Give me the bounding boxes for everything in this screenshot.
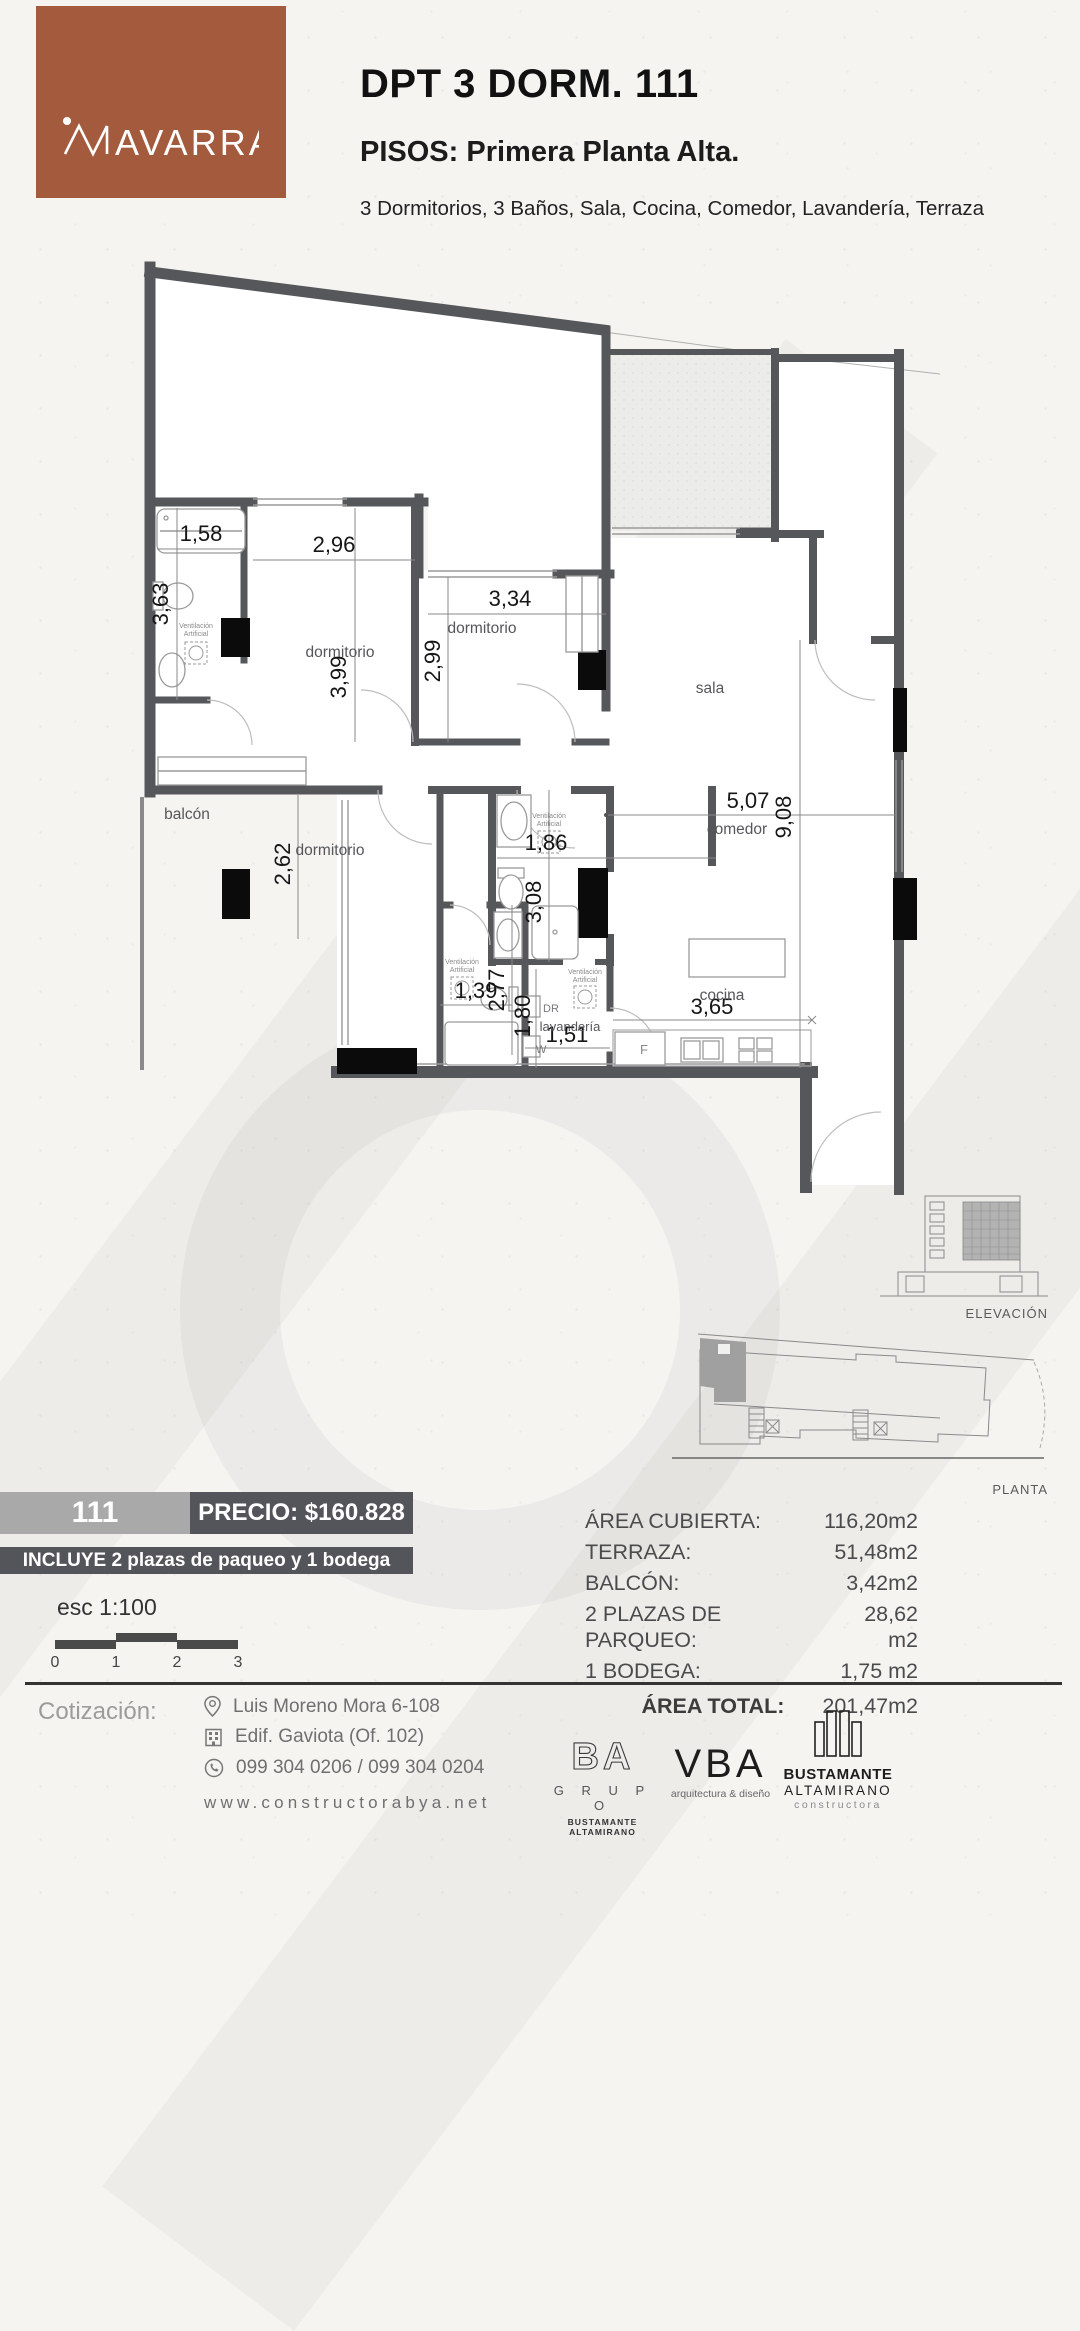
dim-dorm1-height: 3,99 — [326, 656, 351, 699]
logo-text: AVARRA — [115, 122, 259, 162]
scale-bar-graphic — [55, 1630, 255, 1650]
area-value: 1,75 m2 — [840, 1658, 918, 1684]
buildings-icon — [814, 1708, 862, 1758]
fridge-label: F — [640, 1042, 648, 1057]
dim-dorm3-height: 2,62 — [270, 843, 295, 886]
room-lavanderia: lavandería — [540, 1019, 601, 1034]
svg-text:Ventilación: Ventilación — [179, 623, 213, 630]
vba-logo: VBA arquitectura & diseño — [668, 1742, 773, 1800]
contact-text: Luis Moreno Mora 6-108 — [233, 1696, 440, 1718]
scale-bar: 0 1 2 3 — [55, 1630, 255, 1674]
grupo-label: G R U P O — [545, 1783, 660, 1813]
grupo-bustamante-altamirano-logo: BA G R U P O BUSTAMANTE ALTAMIRANO — [545, 1736, 660, 1837]
contact-phone: 099 304 0206 / 099 304 0204 — [204, 1757, 484, 1779]
site-plan-label: PLANTA — [992, 1482, 1048, 1497]
table-row: TERRAZA: 51,48m2 — [585, 1539, 918, 1565]
washer-label: W — [536, 1044, 547, 1056]
svg-text:Artificial: Artificial — [184, 631, 209, 638]
room-cocina: cocina — [700, 987, 745, 1004]
scale-tick-2: 2 — [169, 1654, 185, 1672]
quote-label: Cotización: — [38, 1698, 157, 1726]
table-row: ÁREA CUBIERTA: 116,20m2 — [585, 1508, 918, 1534]
table-row: 1 BODEGA: 1,75 m2 — [585, 1658, 918, 1684]
scale-tick-3: 3 — [230, 1654, 246, 1672]
room-dormitorio-1: dormitorio — [306, 644, 375, 661]
room-balcon: balcón — [164, 806, 210, 823]
logo-dot-icon — [63, 117, 71, 125]
table-row: 2 PLAZAS DE PARQUEO: 28,62 m2 — [585, 1601, 918, 1653]
footer-divider — [25, 1682, 1062, 1685]
vba-letters: VBA — [668, 1742, 773, 1787]
dim-dining-width: 5,07 — [727, 788, 770, 813]
dim-dorm2-width: 3,34 — [489, 586, 532, 611]
scale-label: esc 1:100 — [57, 1594, 157, 1621]
stair-core — [766, 1420, 887, 1435]
svg-text:Artificial: Artificial — [450, 967, 475, 974]
elevation-label: ELEVACIÓN — [966, 1306, 1048, 1321]
bustamante-altamirano-constructora-logo: BUSTAMANTE ALTAMIRANO constructora — [778, 1708, 898, 1811]
scale-tick-1: 1 — [108, 1654, 124, 1672]
bac-line3: constructora — [778, 1799, 898, 1811]
building-icon — [204, 1728, 223, 1747]
website-text: www.constructorabya.net — [204, 1793, 491, 1813]
dryer-label: DR — [543, 1003, 559, 1015]
dim-bath2-height: 3,08 — [521, 881, 546, 924]
svg-text:Ventilación: Ventilación — [445, 959, 479, 966]
price-badge: PRECIO: $160.828 — [190, 1492, 413, 1534]
area-label: 1 BODEGA: — [585, 1658, 701, 1684]
area-label: BALCÓN: — [585, 1570, 679, 1596]
area-label: 2 PLAZAS DE PARQUEO: — [585, 1601, 831, 1653]
ba-letters: BA — [571, 1736, 634, 1776]
svg-text:Ventilación: Ventilación — [568, 969, 602, 976]
area-value: 28,62 m2 — [831, 1601, 918, 1653]
logo-mountain-icon — [65, 126, 107, 154]
includes-badge: INCLUYE 2 plazas de paqueo y 1 bodega — [0, 1547, 413, 1574]
area-label: TERRAZA: — [585, 1539, 691, 1565]
location-pin-icon — [204, 1695, 221, 1718]
floor-plan: Ventilación Artificial Ventilación Artif… — [0, 240, 1080, 1500]
elevation-sketch: ELEVACIÓN — [880, 1196, 1048, 1321]
contact-text: 099 304 0206 / 099 304 0204 — [236, 1757, 484, 1779]
unit-description: 3 Dormitorios, 3 Baños, Sala, Cocina, Co… — [360, 197, 984, 221]
room-dormitorio-2: dormitorio — [448, 620, 517, 637]
dim-laundry-height: 1,80 — [510, 995, 535, 1038]
navarra-logo: AVARRA — [63, 112, 259, 162]
contact-text: Edif. Gaviota (Of. 102) — [235, 1726, 424, 1748]
contact-address: Luis Moreno Mora 6-108 — [204, 1695, 440, 1718]
areas-table: ÁREA CUBIERTA: 116,20m2 TERRAZA: 51,48m2… — [585, 1508, 918, 1719]
room-dormitorio-3: dormitorio — [296, 842, 365, 859]
dim-living-height: 9,08 — [771, 796, 796, 839]
room-sala: sala — [696, 680, 725, 697]
whatsapp-icon — [204, 1758, 224, 1778]
dim-bath1-height: 3,63 — [148, 583, 173, 626]
area-value: 51,48m2 — [834, 1539, 918, 1565]
ba-monogram-icon: BA — [560, 1736, 646, 1776]
grupo-sub-label: BUSTAMANTE ALTAMIRANO — [545, 1817, 660, 1837]
dim-bath1-width: 1,58 — [180, 521, 223, 546]
dim-dorm1-width: 2,96 — [313, 532, 356, 557]
area-value: 116,20m2 — [824, 1508, 918, 1534]
room-comedor: comedor — [707, 821, 767, 838]
area-label: ÁREA CUBIERTA: — [585, 1508, 761, 1534]
contact-building: Edif. Gaviota (Of. 102) — [204, 1726, 424, 1748]
vba-sub-label: arquitectura & diseño — [668, 1788, 773, 1800]
unit-number-badge: 111 — [0, 1492, 190, 1534]
bath-counter — [445, 1022, 518, 1065]
page-subtitle: PISOS: Primera Planta Alta. — [360, 136, 739, 169]
terrace-textured-area — [606, 352, 775, 531]
scale-tick-0: 0 — [47, 1654, 63, 1672]
dim-bath3-height: 2,77 — [484, 969, 509, 1012]
area-value: 3,42m2 — [846, 1570, 918, 1596]
bac-line2: ALTAMIRANO — [778, 1783, 898, 1798]
site-plan-sketch: PLANTA — [672, 1334, 1048, 1497]
brand-box: AVARRA — [36, 6, 286, 198]
svg-text:Artificial: Artificial — [573, 977, 598, 984]
kitchen-island — [689, 939, 785, 977]
table-row: BALCÓN: 3,42m2 — [585, 1570, 918, 1596]
dim-bath2-width: 1,86 — [525, 830, 568, 855]
bac-line1: BUSTAMANTE — [778, 1766, 898, 1783]
page-title: DPT 3 DORM. 111 — [360, 62, 699, 107]
dim-dorm2-height: 2,99 — [420, 640, 445, 683]
sink — [159, 653, 185, 687]
